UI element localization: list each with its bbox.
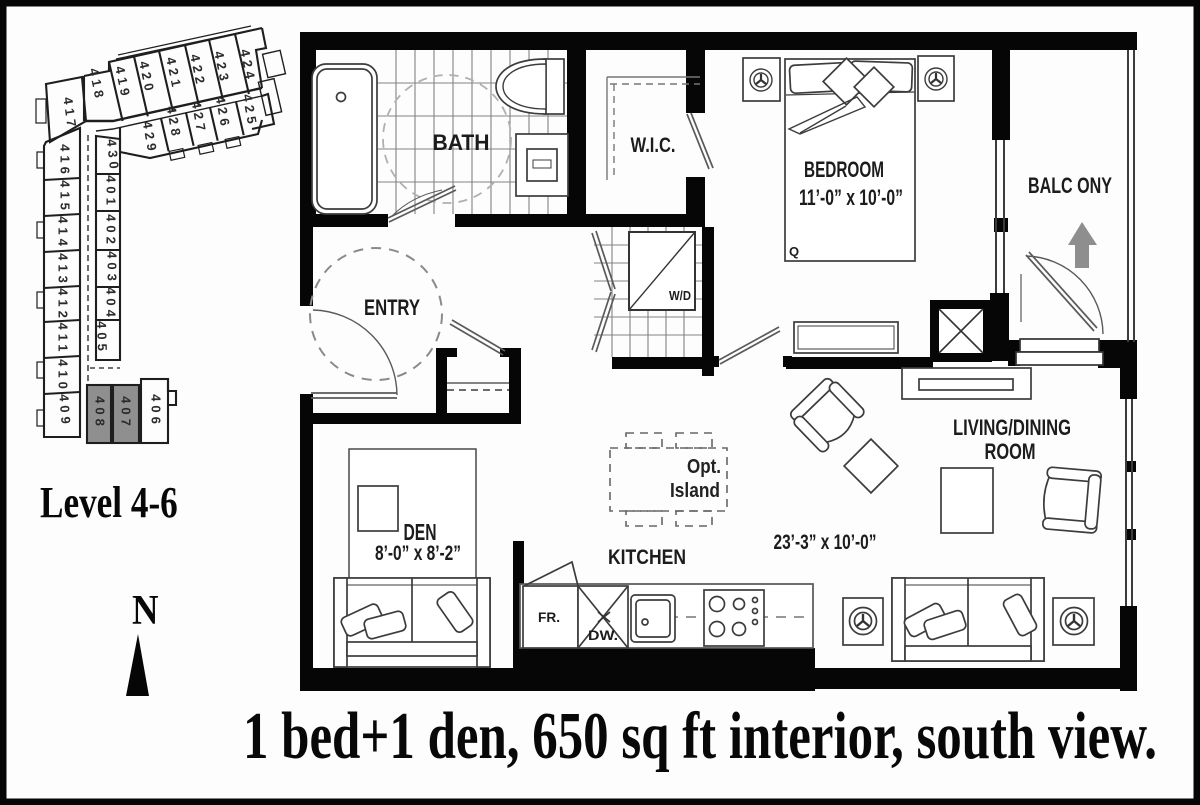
svg-text:408: 408 (93, 396, 108, 430)
svg-text:KITCHEN: KITCHEN (608, 546, 686, 569)
svg-text:404: 404 (104, 287, 119, 321)
svg-text:W.I.C.: W.I.C. (631, 134, 676, 157)
svg-text:415: 415 (58, 180, 73, 214)
svg-text:401: 401 (104, 175, 119, 209)
svg-text:Level 4-6: Level 4-6 (40, 477, 178, 527)
svg-text:Island: Island (670, 480, 720, 502)
svg-text:ROOM: ROOM (985, 439, 1036, 464)
svg-text:411: 411 (56, 323, 71, 356)
svg-text:407: 407 (119, 396, 134, 430)
svg-text:409: 409 (56, 394, 73, 429)
svg-text:DW.: DW. (588, 627, 618, 643)
svg-text:N: N (132, 587, 159, 634)
svg-text:405: 405 (94, 321, 110, 355)
svg-text:FR.: FR. (538, 609, 560, 625)
svg-text:410: 410 (56, 359, 71, 393)
svg-text:BEDROOM: BEDROOM (804, 157, 884, 182)
svg-text:406: 406 (149, 394, 164, 428)
svg-text:416: 416 (58, 144, 73, 178)
svg-text:Opt.: Opt. (687, 456, 721, 478)
svg-text:Q: Q (789, 244, 799, 259)
svg-text:8’-0” x 8’-2”: 8’-0” x 8’-2” (375, 542, 461, 565)
svg-text:ENTRY: ENTRY (364, 295, 420, 320)
svg-text:414: 414 (56, 216, 71, 250)
svg-text:BATH: BATH (433, 130, 490, 155)
svg-text:1 bed+1 den, 650 sq ft interio: 1 bed+1 den, 650 sq ft interior, south v… (243, 698, 1157, 772)
svg-text:11’-0” x 10’-0”: 11’-0” x 10’-0” (799, 185, 903, 210)
svg-text:W/D: W/D (669, 288, 691, 303)
svg-text:413: 413 (56, 253, 71, 287)
svg-text:412: 412 (56, 288, 71, 322)
svg-text:23’-3” x 10’-0”: 23’-3” x 10’-0” (774, 531, 877, 554)
svg-text:BALC ONY: BALC ONY (1028, 173, 1112, 198)
svg-text:402: 402 (104, 214, 119, 248)
svg-text:LIVING/DINING: LIVING/DINING (953, 415, 1071, 440)
svg-text:403: 403 (105, 251, 120, 285)
